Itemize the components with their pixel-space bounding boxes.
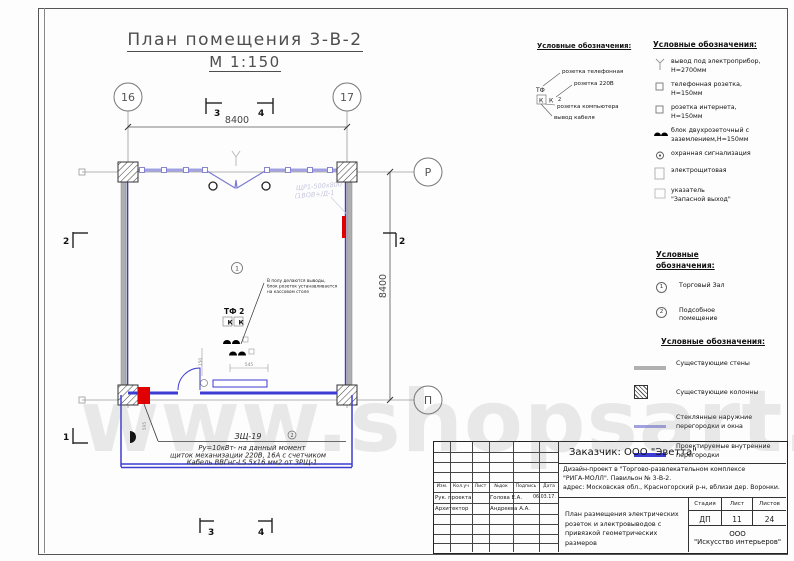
col-koluch: Кол.уч (450, 484, 472, 489)
legend-electrical-title: Условные обозначения: (653, 40, 793, 49)
phone-socket-icon (653, 81, 671, 93)
svg-text:8400: 8400 (225, 115, 249, 126)
title-block-right: Заказчик: ООО "Эветта" Дизайн-проект в "… (559, 442, 786, 552)
legend-rooms-title: Условные обозначения: (656, 250, 786, 272)
legend-sym-tf: ТФ (535, 87, 545, 94)
electrical-panel-red (138, 387, 150, 404)
row2-role: Архитектор (435, 506, 489, 512)
legend-item: блок двухрозеточный с заземлением,Н=150м… (653, 127, 793, 144)
stage-table: Стадия Лист Листов ДП 11 24 ООО "Искусст… (689, 498, 786, 552)
svg-text:8400: 8400 (378, 274, 389, 298)
company-cell: ООО "Искусство интерьеров" (689, 526, 786, 552)
sheet-label: Лист (722, 498, 753, 511)
cash-counter (213, 380, 267, 387)
svg-text:К: К (549, 98, 554, 105)
svg-text:В полу делаются выводы,: В полу делаются выводы, (267, 278, 326, 284)
cable-entry-symbol (130, 431, 136, 443)
legend-wall-item: Стеклянные наружние перегородки и окна (634, 413, 792, 432)
axis-label-16: 16 (121, 91, 135, 104)
title-block-left-table: Изм. Кол.уч Лист №док Подпись Дата Рук. … (434, 442, 559, 552)
svg-text:К: К (539, 98, 544, 105)
glass-partition-swatch (634, 413, 676, 432)
legend-item: телефонная розетка, Н=150мм (653, 81, 793, 98)
outlet-callout-icon (653, 58, 671, 71)
legend-item: розетка интернета, Н=150мм (653, 104, 793, 121)
existing-wall-swatch (634, 355, 676, 374)
legend-item: вывод под электроприбор, Н=2700мм (653, 58, 793, 75)
sheets-value: 24 (753, 511, 786, 526)
room-1-badge: 1 (656, 282, 667, 293)
svg-text:1: 1 (63, 433, 69, 443)
tf2-label: ТФ 2 (224, 307, 244, 316)
row1-name: Голова Е.А. (490, 495, 532, 501)
floor-plan: 16 17 Р П 8400 3 4 8400 2 2 1 3 (30, 30, 490, 550)
double-socket-icon (653, 127, 671, 138)
legend-room-item: 2 Подсобное помещение (656, 307, 786, 324)
svg-text:розетка компьютера: розетка компьютера (557, 104, 619, 110)
svg-text:2: 2 (63, 237, 69, 247)
svg-text:2: 2 (399, 237, 405, 247)
switchboard-icon (653, 167, 671, 181)
alarm-symbol-right (262, 182, 270, 190)
legend-electrical: Условные обозначения: вывод под электроп… (653, 40, 793, 210)
legend-sockets-diagram: ТФ К К 2 розетка телефонная розетка 220В… (535, 52, 650, 122)
dimension-top: 8400 (125, 115, 350, 130)
axis-label-P: П (424, 394, 432, 407)
svg-text:2: 2 (290, 433, 293, 439)
door-swing (178, 368, 200, 390)
svg-text:2: 2 (558, 97, 561, 103)
internet-socket-icon (653, 104, 671, 116)
drawing-sheet: { "watermark": "www.shopsart.ru", "title… (0, 0, 794, 561)
col-list: Лист (472, 484, 489, 489)
sheets-label: Листов (753, 498, 786, 511)
svg-text:545: 545 (245, 362, 254, 368)
socket-annotation: В полу делаются выводы, блок розеток уст… (267, 278, 338, 295)
axis-label-17: 17 (340, 91, 354, 104)
svg-text:розетка 220В: розетка 220В (574, 81, 614, 87)
stage-value: ДП (689, 511, 722, 526)
svg-text:блок розеток устанавливается: блок розеток устанавливается (267, 284, 338, 290)
existing-column-swatch (634, 384, 676, 403)
legend-sockets-title: Условные обозначения: (537, 42, 631, 50)
svg-text:вывод кабеля: вывод кабеля (554, 115, 595, 121)
section-marker-2-right (383, 233, 396, 247)
small-fixture-circle (201, 380, 208, 387)
legend-room-item: 1 Торговый Зал (656, 282, 786, 293)
svg-text:3: 3 (208, 528, 214, 538)
col-data: Дата (539, 484, 559, 489)
axis-label-R: Р (425, 166, 432, 179)
axis-bubbles (114, 83, 442, 414)
section-marker-1-left (73, 428, 88, 444)
alarm-icon (653, 150, 671, 161)
svg-text:4: 4 (258, 528, 264, 538)
col-ndok: №док (489, 484, 513, 489)
customer-cell: Заказчик: ООО "Эветта" (559, 442, 786, 464)
title-block: Изм. Кол.уч Лист №док Подпись Дата Рук. … (433, 441, 788, 554)
exit-sign-icon (653, 187, 671, 201)
electric-outlet-callout-icon (232, 151, 240, 166)
panel-note-text: Ру=10кВт- на данный момент щиток механиз… (170, 444, 326, 467)
svg-text:1: 1 (235, 266, 239, 273)
panel-label: ЗЩ-19 (235, 432, 262, 441)
legend-wall-item: Существующие колонны (634, 384, 792, 403)
legend-item: указатель "Запасной выход" (653, 187, 793, 204)
svg-text:на кассовом столе: на кассовом столе (267, 290, 309, 295)
drawing-title-cell: План размещения электрических розеток и … (559, 498, 689, 552)
svg-text:3: 3 (214, 109, 220, 119)
svg-text:К: К (228, 319, 234, 327)
double-socket-blocks (223, 337, 254, 356)
customer-text: Заказчик: ООО "Эветта" (559, 442, 786, 458)
alarm-symbol-left (209, 182, 217, 190)
sheet-value: 11 (722, 511, 753, 526)
row1-role: Рук. проекта (435, 495, 489, 501)
project-cell: Дизайн-проект в "Торгово-развлекательном… (559, 464, 786, 498)
row2-name: Андреева А.А. (490, 506, 536, 512)
faint-panel-note: ЩР1-500х800 (1ВОВ+/Д-1 (294, 180, 347, 218)
legend-walls-title: Условные обозначения: (634, 337, 792, 346)
legend-wall-item: Существующие стены (634, 355, 792, 374)
svg-text:150: 150 (198, 358, 204, 367)
svg-text:розетка телефонная: розетка телефонная (562, 69, 623, 75)
socket-leader-line (241, 283, 264, 344)
col-izm: Изм. (434, 484, 450, 489)
legend-item: охранная сигнализация (653, 150, 793, 161)
legend-rooms: Условные обозначения: 1 Торговый Зал 2 П… (656, 250, 786, 330)
legend-item: электрощитовая (653, 167, 793, 181)
col-podpis: Подпись (513, 484, 539, 489)
red-wall-mark (342, 216, 346, 238)
stage-label: Стадия (689, 498, 722, 511)
dimension-right: 8400 (378, 169, 393, 403)
svg-text:К: К (239, 319, 245, 327)
svg-text:4: 4 (258, 109, 264, 119)
drawing-title-text: План размещения электрических розеток и … (559, 498, 688, 548)
svg-text:Кабель ВВГнг-LS 5х16 мм2 от ЗР: Кабель ВВГнг-LS 5х16 мм2 от ЗРЩ-1 (187, 459, 318, 467)
dim-595: 595 (142, 422, 148, 431)
row1-date: 06.03.17. (533, 495, 559, 500)
room-2-badge: 2 (656, 307, 667, 318)
section-marker-2-left (73, 232, 88, 248)
